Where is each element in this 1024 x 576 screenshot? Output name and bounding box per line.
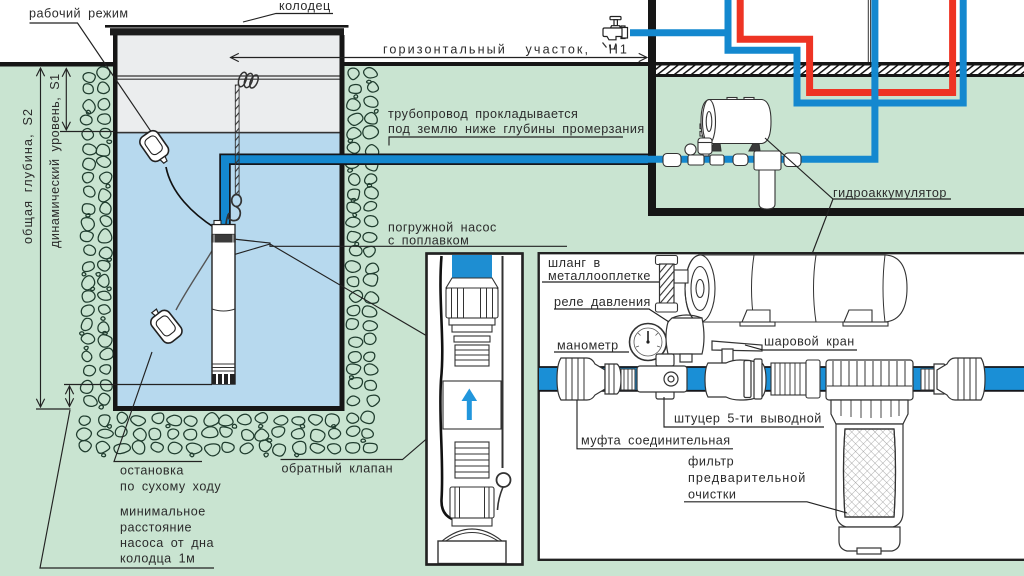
- svg-text:обратный клапан: обратный клапан: [282, 462, 394, 476]
- svg-text:фильтр: фильтр: [688, 455, 734, 469]
- svg-text:насоса от дна: насоса от дна: [120, 536, 214, 550]
- svg-text:реле давления: реле давления: [554, 295, 651, 309]
- svg-text:динамический уровень, S1: динамический уровень, S1: [48, 73, 62, 248]
- svg-text:муфта соединительная: муфта соединительная: [581, 434, 731, 448]
- svg-text:штуцер 5-ти выводной: штуцер 5-ти выводной: [674, 412, 822, 426]
- svg-text:трубопровод прокладывается: трубопровод прокладывается: [388, 107, 578, 121]
- svg-text:минимальное: минимальное: [120, 505, 206, 519]
- svg-text:колодца 1м: колодца 1м: [120, 552, 195, 566]
- svg-text:колодец: колодец: [279, 0, 331, 13]
- svg-text:остановка: остановка: [120, 464, 184, 478]
- svg-text:предварительной: предварительной: [688, 471, 806, 485]
- svg-text:погружной насос: погружной насос: [388, 221, 497, 235]
- svg-text:манометр: манометр: [557, 339, 619, 353]
- svg-text:металлооплетке: металлооплетке: [548, 269, 651, 283]
- svg-text:общая глубина, S2: общая глубина, S2: [21, 108, 35, 244]
- svg-text:расстояние: расстояние: [120, 521, 192, 535]
- svg-text:с поплавком: с поплавком: [388, 234, 469, 248]
- svg-text:очистки: очистки: [688, 488, 736, 502]
- svg-text:рабочий режим: рабочий режим: [29, 7, 129, 21]
- svg-text:горизонтальный участок, Н1: горизонтальный участок, Н1: [383, 43, 629, 57]
- svg-text:шланг в: шланг в: [548, 256, 601, 270]
- svg-text:по сухому ходу: по сухому ходу: [120, 480, 221, 494]
- svg-text:под землю ниже глубины промерз: под землю ниже глубины промерзания: [388, 122, 645, 136]
- svg-text:шаровой кран: шаровой кран: [764, 335, 855, 349]
- svg-text:гидроаккумулятор: гидроаккумулятор: [833, 186, 947, 200]
